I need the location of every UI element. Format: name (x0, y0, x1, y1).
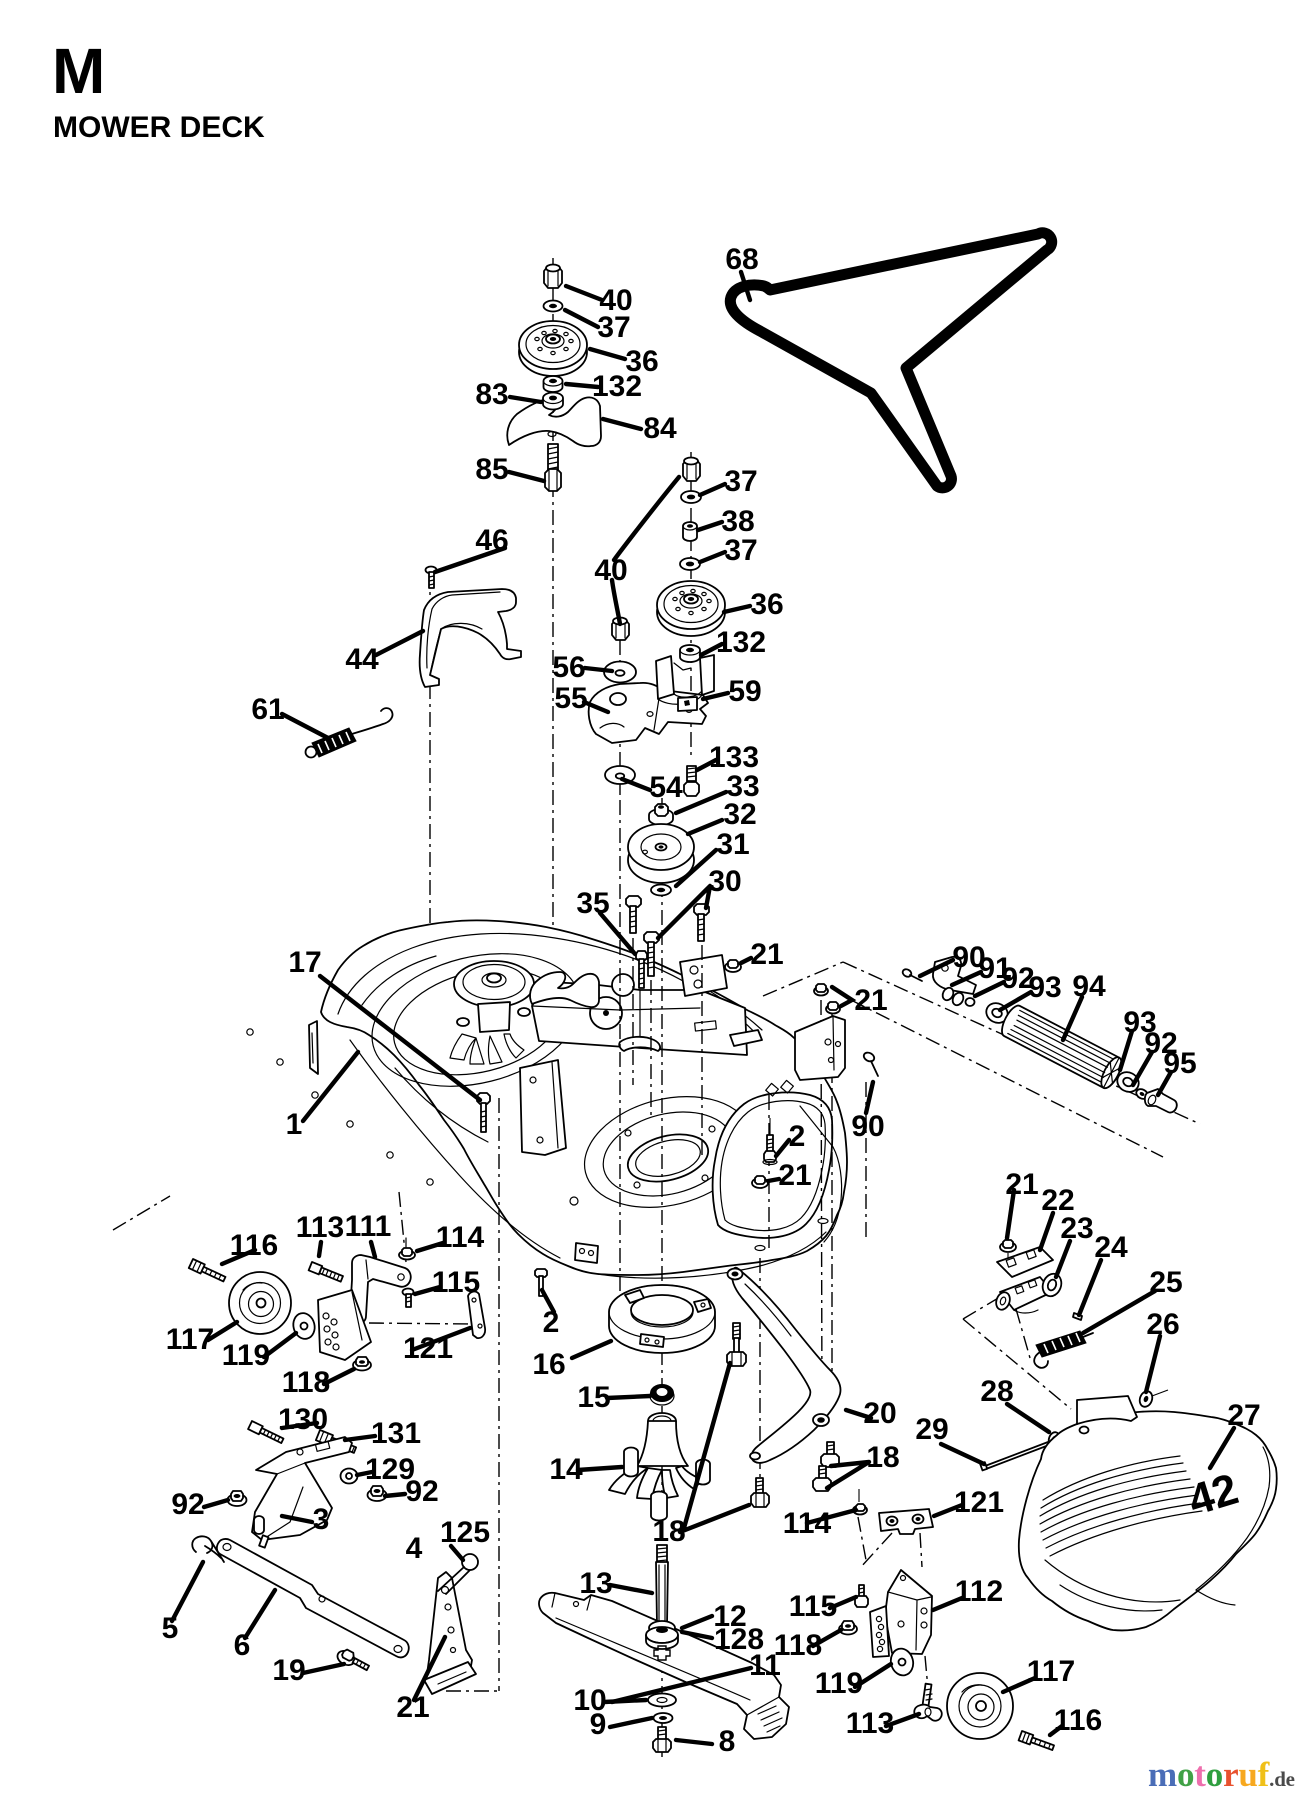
svg-text:30: 30 (708, 865, 741, 898)
svg-text:MOWER DECK: MOWER DECK (53, 111, 265, 144)
svg-text:29: 29 (915, 1413, 948, 1446)
svg-text:85: 85 (475, 453, 508, 486)
svg-text:21: 21 (778, 1159, 811, 1192)
svg-text:13: 13 (579, 1567, 612, 1600)
svg-text:17: 17 (288, 946, 321, 979)
svg-text:23: 23 (1060, 1212, 1093, 1245)
svg-text:21: 21 (750, 938, 783, 971)
svg-text:37: 37 (724, 534, 757, 567)
svg-text:44: 44 (345, 643, 379, 676)
svg-text:116: 116 (1054, 1704, 1102, 1737)
svg-text:32: 32 (723, 798, 756, 831)
svg-text:117: 117 (166, 1323, 214, 1356)
svg-text:27: 27 (1227, 1399, 1260, 1432)
svg-text:21: 21 (854, 984, 887, 1017)
svg-text:5: 5 (162, 1612, 179, 1645)
svg-text:59: 59 (728, 675, 761, 708)
svg-text:6: 6 (234, 1629, 251, 1662)
svg-text:21: 21 (1005, 1168, 1038, 1201)
svg-text:90: 90 (851, 1110, 884, 1143)
svg-text:9: 9 (590, 1708, 607, 1741)
svg-text:111: 111 (345, 1210, 392, 1243)
svg-text:18: 18 (652, 1515, 685, 1548)
svg-text:24: 24 (1094, 1231, 1128, 1264)
svg-text:35: 35 (576, 887, 609, 920)
svg-text:115: 115 (432, 1266, 480, 1299)
svg-text:31: 31 (716, 828, 749, 861)
svg-text:28: 28 (980, 1375, 1013, 1408)
svg-text:121: 121 (954, 1486, 1004, 1519)
svg-text:1: 1 (286, 1108, 303, 1141)
svg-text:19: 19 (272, 1654, 305, 1687)
svg-text:54: 54 (649, 771, 683, 804)
svg-text:130: 130 (278, 1403, 328, 1436)
svg-text:125: 125 (440, 1516, 490, 1549)
svg-text:68: 68 (725, 243, 758, 276)
svg-text:2: 2 (789, 1120, 806, 1153)
svg-text:92: 92 (171, 1488, 204, 1521)
svg-text:15: 15 (577, 1381, 610, 1414)
svg-text:132: 132 (716, 626, 766, 659)
svg-text:112: 112 (955, 1575, 1003, 1608)
svg-text:36: 36 (750, 588, 783, 621)
svg-text:117: 117 (1027, 1655, 1075, 1688)
svg-text:37: 37 (597, 311, 630, 344)
svg-text:115: 115 (789, 1590, 837, 1623)
svg-text:46: 46 (475, 524, 508, 557)
svg-text:40: 40 (594, 554, 627, 587)
svg-text:94: 94 (1072, 970, 1106, 1003)
svg-text:2: 2 (543, 1306, 560, 1339)
svg-text:84: 84 (643, 412, 677, 445)
svg-text:118: 118 (774, 1629, 822, 1662)
svg-text:132: 132 (592, 370, 642, 403)
svg-text:8: 8 (719, 1725, 736, 1758)
svg-text:3: 3 (313, 1503, 330, 1536)
svg-text:25: 25 (1149, 1266, 1182, 1299)
svg-text:M: M (52, 35, 105, 107)
svg-text:118: 118 (282, 1366, 330, 1399)
svg-text:92: 92 (405, 1475, 438, 1508)
svg-text:4: 4 (406, 1532, 423, 1565)
svg-text:121: 121 (403, 1332, 453, 1365)
svg-text:26: 26 (1146, 1308, 1179, 1341)
svg-text:20: 20 (863, 1397, 896, 1430)
svg-text:18: 18 (866, 1441, 899, 1474)
svg-text:131: 131 (371, 1417, 421, 1450)
svg-text:56: 56 (552, 651, 585, 684)
svg-text:113: 113 (846, 1707, 894, 1740)
svg-text:95: 95 (1163, 1047, 1196, 1080)
svg-text:16: 16 (532, 1348, 565, 1381)
svg-text:14: 14 (549, 1453, 583, 1486)
svg-text:116: 116 (230, 1229, 278, 1262)
svg-text:113: 113 (296, 1211, 344, 1244)
svg-text:114: 114 (783, 1507, 832, 1540)
svg-text:83: 83 (475, 378, 508, 411)
svg-text:55: 55 (554, 682, 587, 715)
svg-text:61: 61 (251, 693, 284, 726)
svg-text:114: 114 (436, 1221, 485, 1254)
svg-text:119: 119 (815, 1667, 863, 1700)
svg-text:93: 93 (1028, 971, 1061, 1004)
svg-text:21: 21 (396, 1691, 429, 1724)
svg-text:119: 119 (222, 1339, 270, 1372)
svg-text:37: 37 (724, 465, 757, 498)
